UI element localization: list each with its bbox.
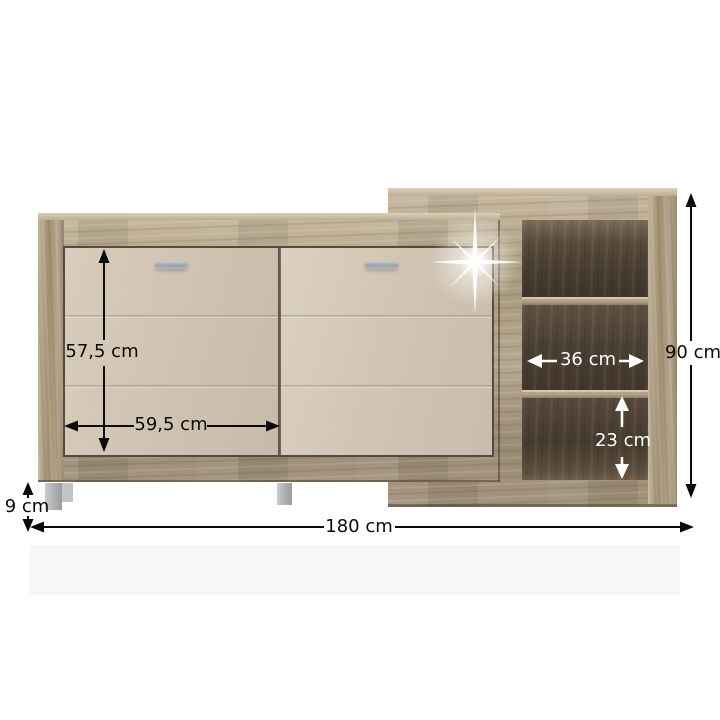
shelf-unit-top-edge xyxy=(388,188,677,196)
furniture-leg-middle xyxy=(277,483,292,505)
dimension-label-door-width: 59,5 cm xyxy=(134,416,207,434)
floor-shadow xyxy=(30,545,680,595)
dimension-label-niche-height: 23 cm xyxy=(595,432,651,450)
door-groove xyxy=(281,385,492,388)
dimension-label-total-height: 90 cm xyxy=(665,344,720,362)
sideboard-right-door xyxy=(281,248,492,455)
dimension-label-total-width: 180 cm xyxy=(325,518,393,536)
dimension-label-door-height: 57,5 cm xyxy=(65,343,138,361)
dimension-label-leg-height: 9 cm xyxy=(5,498,50,516)
door-handle-left xyxy=(155,261,188,269)
dimension-label-niche-width: 36 cm xyxy=(560,351,616,369)
furniture-leg-left-step xyxy=(62,483,73,502)
sideboard-top-edge xyxy=(38,213,500,220)
shelf-board-upper xyxy=(522,297,648,305)
furniture-dimension-diagram: 57,5 cm 59,5 cm 36 cm 23 cm 90 cm 180 cm… xyxy=(0,0,720,720)
door-groove xyxy=(281,315,492,318)
door-groove xyxy=(65,385,278,388)
shelf-compartment-top xyxy=(522,220,648,297)
door-groove xyxy=(65,315,278,318)
shelf-compartment-middle xyxy=(522,305,648,390)
shelf-board-lower xyxy=(522,390,648,398)
sideboard-left-frame xyxy=(38,220,64,480)
door-handle-right xyxy=(365,261,398,269)
